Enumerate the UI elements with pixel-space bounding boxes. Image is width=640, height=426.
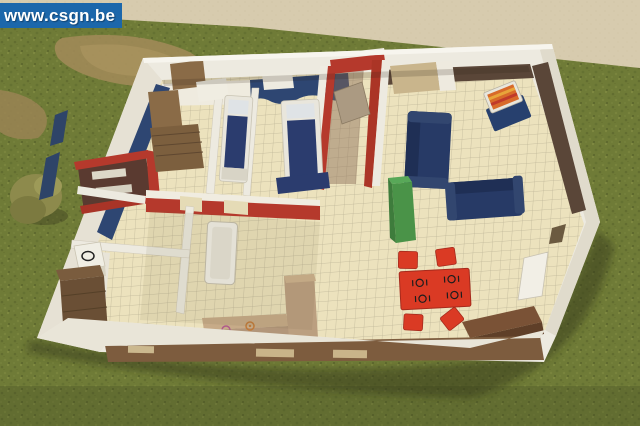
door-gap-2 (224, 200, 248, 215)
dining-table (399, 268, 471, 310)
bush (10, 174, 68, 225)
sofa-1 (404, 111, 452, 189)
watermark-text: www.csgn.be (4, 6, 115, 25)
bed-blanket (287, 119, 318, 176)
front-window-1 (128, 346, 154, 353)
photo-stage: www.csgn.be (0, 0, 640, 426)
toilet-top (74, 242, 105, 270)
green-cabinet-front (392, 182, 416, 243)
bed-blanket (224, 115, 248, 168)
stool (403, 314, 423, 331)
bed-pillow (228, 99, 249, 114)
scene-illustration (0, 0, 640, 426)
green-cabinet (388, 176, 416, 243)
bed-foot (221, 167, 248, 181)
bed-2 (281, 99, 323, 183)
hall-shade (140, 210, 320, 330)
stool (398, 251, 417, 268)
front-window-2 (256, 349, 294, 358)
sofa-2 (445, 175, 526, 220)
front-window-3 (333, 350, 367, 359)
grass-vignette (0, 386, 640, 426)
bed-1 (219, 95, 253, 183)
bed-pillow (286, 103, 315, 118)
sofa-arm (407, 111, 452, 124)
bush-lobe-dark (10, 196, 46, 224)
desk-low (150, 124, 204, 172)
watermark: www.csgn.be (0, 3, 122, 28)
door-mat (390, 62, 440, 94)
stool (435, 247, 456, 266)
